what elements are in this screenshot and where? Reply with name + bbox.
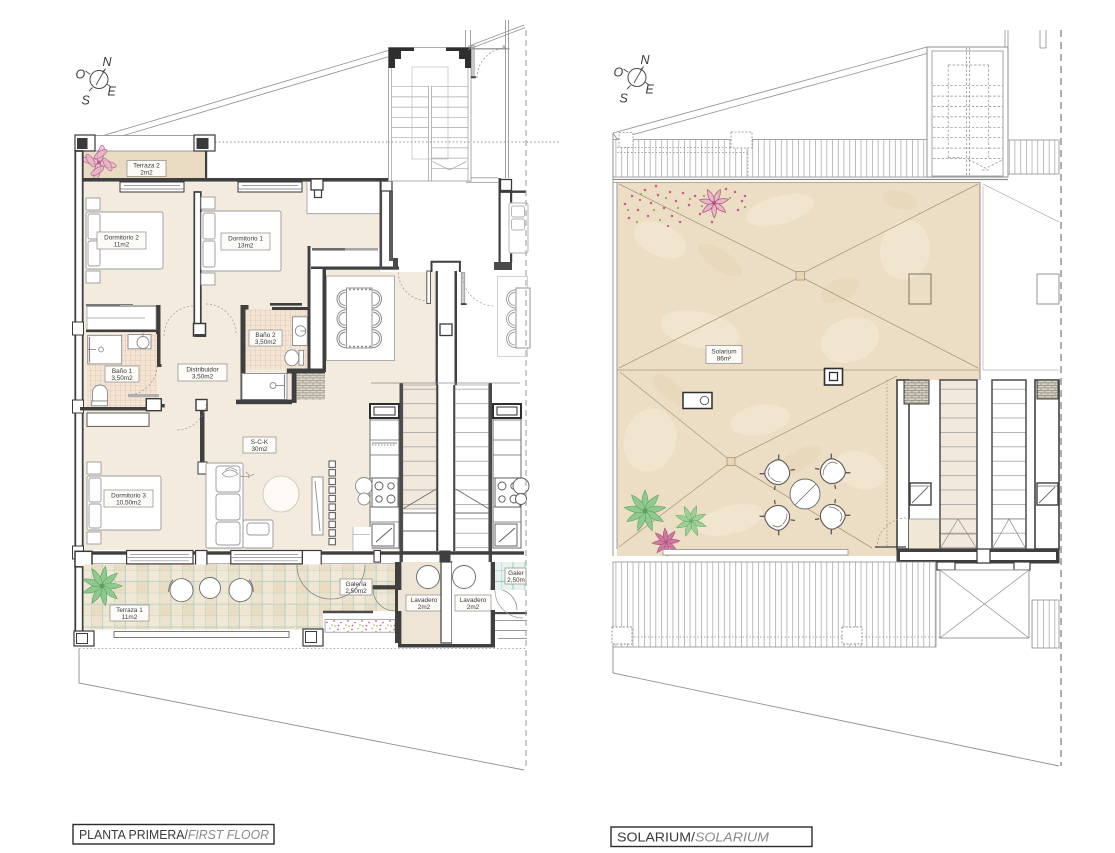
svg-text:PLANTA PRIMERA/FIRST FLOOR: PLANTA PRIMERA/FIRST FLOOR [79,827,269,842]
svg-text:S-C-K: S-C-K [251,439,269,446]
svg-text:3,50m2: 3,50m2 [192,374,214,381]
svg-text:2,50m: 2,50m [507,577,525,584]
svg-text:10,50m2: 10,50m2 [116,500,141,507]
svg-text:3,50m2: 3,50m2 [255,339,277,346]
svg-text:Terraza 1: Terraza 1 [116,607,143,614]
svg-text:2m2: 2m2 [467,604,480,611]
svg-text:O: O [614,66,624,80]
svg-text:2m2: 2m2 [140,170,153,177]
svg-text:Terraza 2: Terraza 2 [133,163,160,170]
svg-text:S: S [620,92,629,106]
svg-text:E: E [646,83,655,97]
svg-text:2m2: 2m2 [418,604,431,611]
svg-text:Galería: Galería [346,581,367,588]
svg-text:Galer: Galer [508,570,524,577]
svg-text:86m²: 86m² [717,356,732,363]
svg-text:N: N [103,55,113,69]
svg-text:Lavadero: Lavadero [411,597,438,604]
svg-text:Dormitorio 3: Dormitorio 3 [111,493,146,500]
svg-text:11m2: 11m2 [114,242,130,249]
svg-text:Distribuidor: Distribuidor [186,367,219,374]
svg-text:Lavadero: Lavadero [460,597,487,604]
svg-text:13m2: 13m2 [238,243,254,250]
svg-text:Baño 2: Baño 2 [255,332,276,339]
svg-text:E: E [108,85,117,99]
svg-text:S: S [82,94,91,108]
svg-text:11m2: 11m2 [122,614,138,621]
svg-text:O: O [76,68,86,82]
svg-text:N: N [641,53,651,67]
svg-text:3,50m2: 3,50m2 [111,375,133,382]
svg-text:Dormitorio 2: Dormitorio 2 [104,235,139,242]
svg-text:Baño 1: Baño 1 [112,368,133,375]
svg-text:30m2: 30m2 [252,446,268,453]
svg-text:SOLARIUM/SOLARIUM: SOLARIUM/SOLARIUM [617,830,769,845]
svg-text:Solarium: Solarium [711,349,736,356]
svg-text:Dormitorio 1: Dormitorio 1 [228,236,263,243]
